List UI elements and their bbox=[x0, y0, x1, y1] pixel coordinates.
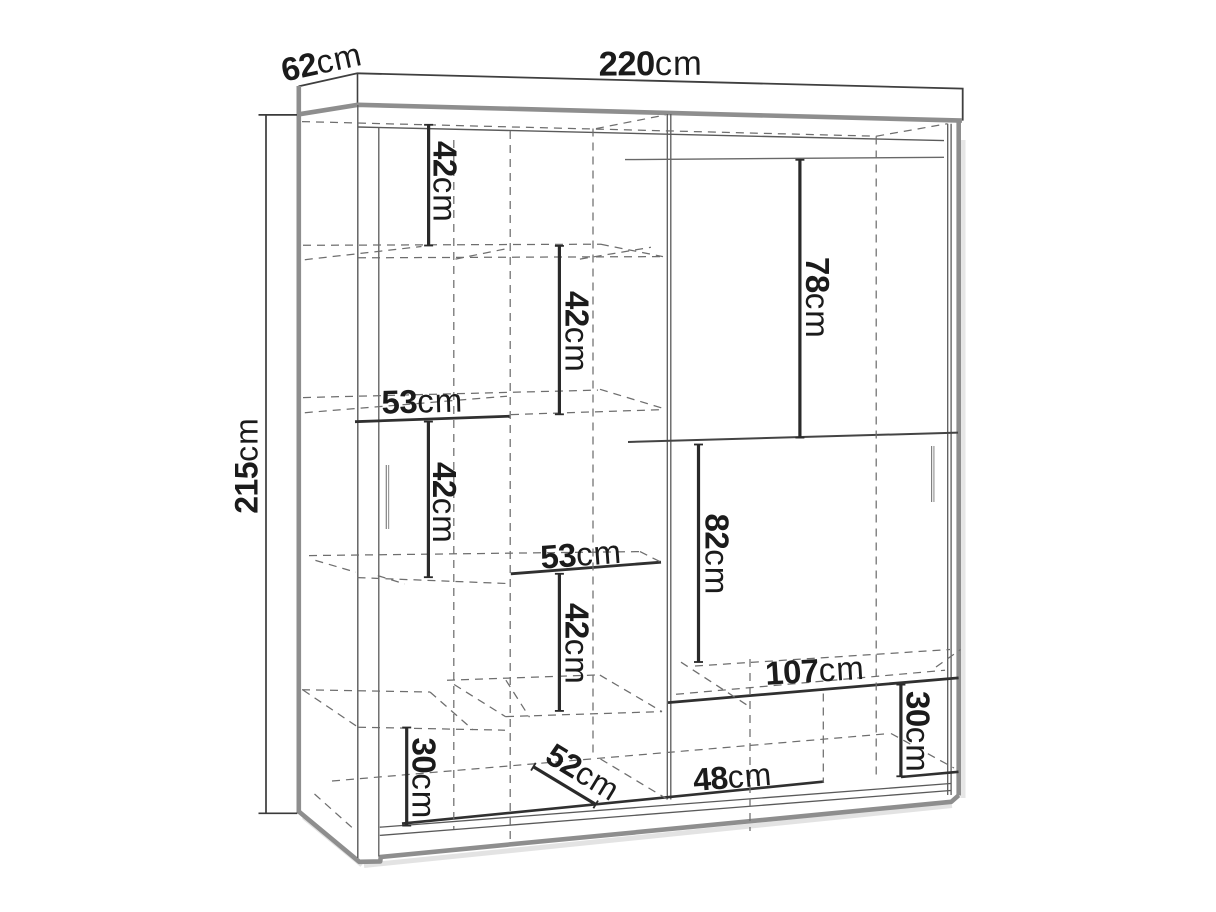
svg-text:30cm: 30cm bbox=[406, 738, 443, 820]
svg-text:53cm: 53cm bbox=[381, 381, 464, 420]
svg-text:220cm: 220cm bbox=[599, 45, 703, 84]
svg-text:78cm: 78cm bbox=[799, 257, 836, 339]
svg-text:215cm: 215cm bbox=[229, 417, 265, 514]
svg-text:42cm: 42cm bbox=[559, 603, 596, 685]
svg-text:107cm: 107cm bbox=[764, 649, 866, 692]
svg-text:53cm: 53cm bbox=[539, 533, 623, 576]
svg-text:48cm: 48cm bbox=[692, 756, 774, 798]
svg-text:42cm: 42cm bbox=[559, 291, 596, 373]
svg-text:82cm: 82cm bbox=[699, 514, 736, 596]
svg-text:42cm: 42cm bbox=[426, 462, 463, 544]
svg-text:30cm: 30cm bbox=[900, 691, 937, 773]
svg-text:42cm: 42cm bbox=[427, 141, 464, 223]
